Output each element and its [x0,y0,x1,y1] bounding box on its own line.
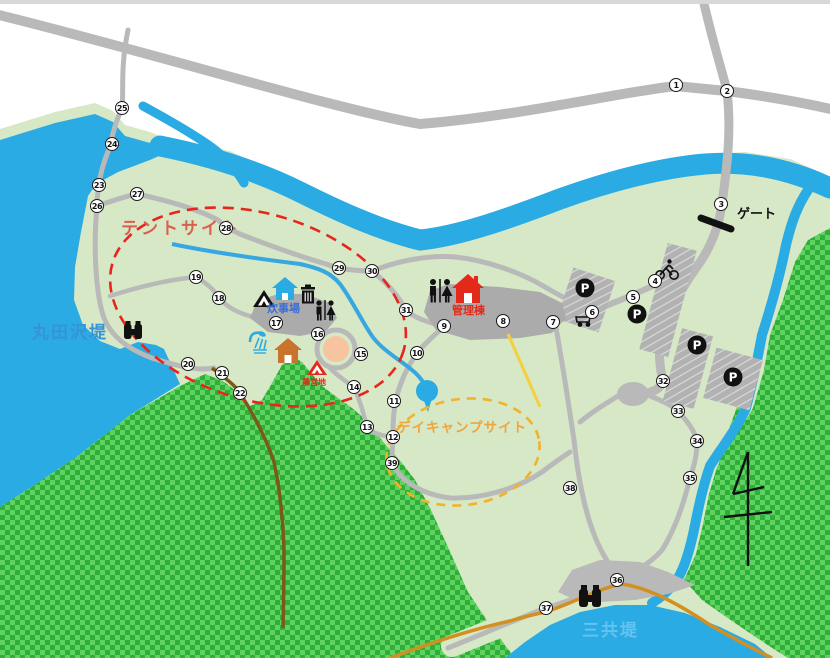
map-marker-23: 23 [92,178,106,192]
map-marker-39: 39 [385,456,399,470]
map-marker-5: 5 [626,290,640,304]
map-marker-15: 15 [354,347,368,361]
map-marker-17: 17 [269,316,283,330]
map-marker-4: 4 [648,274,662,288]
map-marker-19: 19 [189,270,203,284]
map-marker-37: 37 [539,601,553,615]
map-marker-18: 18 [212,291,226,305]
map-marker-14: 14 [347,380,361,394]
map-marker-30: 30 [365,264,379,278]
map-marker-33: 33 [671,404,685,418]
map-marker-20: 20 [181,357,195,371]
map-marker-38: 38 [563,481,577,495]
map-marker-28: 28 [219,221,233,235]
map-marker-34: 34 [690,434,704,448]
map-marker-35: 35 [683,471,697,485]
map-marker-13: 13 [360,420,374,434]
map-marker-10: 10 [410,346,424,360]
map-marker-24: 24 [105,137,119,151]
map-marker-2: 2 [720,84,734,98]
map-marker-27: 27 [130,187,144,201]
map-marker-36: 36 [610,573,624,587]
map-marker-22: 22 [233,386,247,400]
map-marker-8: 8 [496,314,510,328]
map-marker-7: 7 [546,315,560,329]
campground-map: P P P P 丸田沢堤 三共堤 テントサイト デイキャンプサイト 炊事場 管理… [0,0,830,658]
map-marker-21: 21 [215,366,229,380]
markers-layer: 1234567891011121314151617181920212223242… [0,0,830,658]
map-marker-6: 6 [585,305,599,319]
map-marker-9: 9 [437,319,451,333]
map-marker-1: 1 [669,78,683,92]
map-marker-32: 32 [656,374,670,388]
map-marker-26: 26 [90,199,104,213]
map-marker-11: 11 [387,394,401,408]
map-marker-25: 25 [115,101,129,115]
map-marker-29: 29 [332,261,346,275]
map-marker-12: 12 [386,430,400,444]
map-marker-31: 31 [399,303,413,317]
map-marker-16: 16 [311,327,325,341]
map-marker-3: 3 [714,197,728,211]
